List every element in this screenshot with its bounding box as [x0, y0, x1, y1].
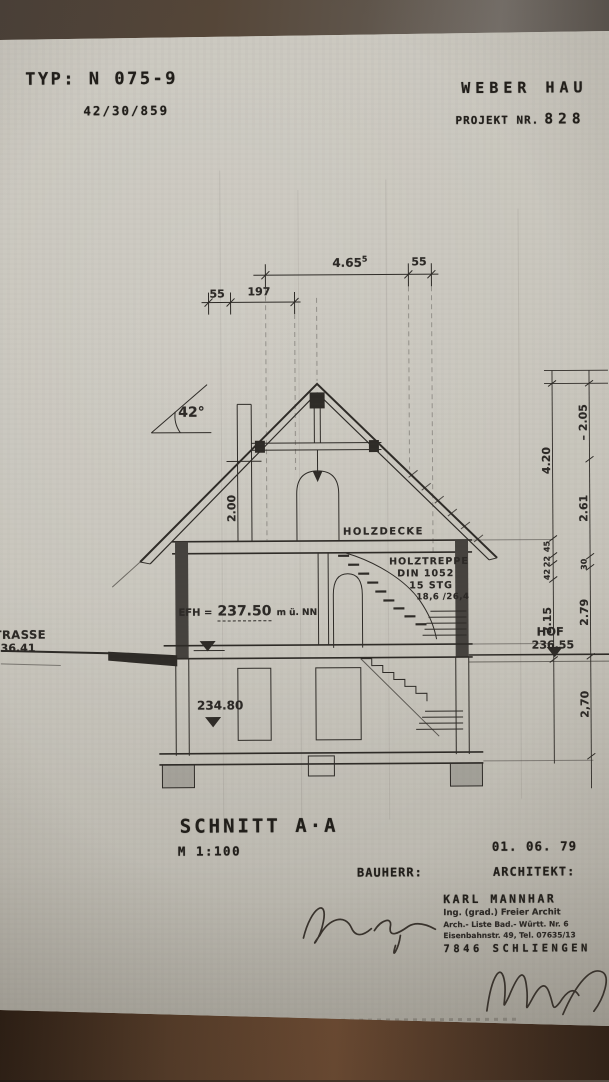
yard-level: 236.55	[532, 638, 575, 651]
dim-outer-30: 30	[580, 559, 589, 570]
street-label: TRASSE	[0, 628, 46, 642]
drawing-scale: M 1:100	[178, 843, 241, 858]
efh-label: EFH =	[178, 608, 212, 619]
dim-top-width-sup: 5	[362, 255, 368, 264]
sheet-content: TYP: N 075-9 42/30/859 WEBER HAU PROJEKT…	[0, 0, 609, 1082]
architect-line4: Eisenbahnstr. 49, Tel. 07635/13	[443, 930, 575, 940]
dim-top-197: 197	[247, 285, 270, 298]
basement-level: 234.80	[197, 698, 243, 712]
architect-name: KARL MANNHAR	[443, 891, 556, 906]
architect-signature	[487, 972, 579, 1011]
dim-outer-270: 2,70	[578, 691, 591, 718]
dim-outer-205: – 2.05	[577, 404, 590, 441]
blueprint-sheet: TYP: N 075-9 42/30/859 WEBER HAU PROJEKT…	[0, 0, 609, 1080]
dim-inner-420: 4.20	[540, 447, 553, 474]
dim-inner-22: 22	[543, 556, 552, 567]
drawing-date: 01. 06. 79	[492, 838, 577, 854]
client-signature	[303, 908, 371, 943]
photographed-blueprint-page: { "header": { "typ": "TYP: N 075-9", "co…	[0, 0, 609, 1080]
stair-note-3: 15 STG	[409, 580, 453, 591]
dim-top-width: 4.655	[332, 255, 367, 270]
efh-unit: m ü. NN	[277, 608, 318, 618]
efh-level: EFH = 237.50 m ü. NN	[178, 600, 317, 620]
efh-value: 237.50	[217, 603, 271, 621]
street-level: 36.41	[1, 642, 36, 655]
dim-inner-45: 45	[543, 541, 552, 552]
stair-note-2: DIN 1052	[397, 568, 454, 579]
drawing-title: SCHNITT A·A	[180, 815, 339, 838]
dim-top-width-value: 4.65	[332, 256, 362, 270]
attic-height-label: 2.00	[225, 495, 238, 522]
architect-label: ARCHITEKT:	[493, 864, 575, 879]
architect-line2: Ing. (grad.) Freier Archit	[443, 907, 560, 918]
dim-top-55r: 55	[411, 255, 426, 268]
client-label: BAUHERR:	[357, 865, 423, 879]
architect-city: 7846 SCHLIENGEN	[443, 942, 590, 955]
dim-inner-42: 42	[543, 569, 552, 580]
dim-outer-279: 2.79	[578, 599, 591, 626]
architect-line3: Arch.- Liste Bad.- Württ. Nr. 6	[443, 919, 568, 929]
roof-angle-label: 42°	[178, 405, 205, 421]
dim-inner-215: 2.15	[541, 607, 554, 634]
holzdecke-label: HOLZDECKE	[343, 526, 424, 537]
dim-top-55l: 55	[209, 287, 224, 300]
dim-outer-261: 2.61	[577, 495, 590, 522]
stair-note-4: 18,6 /26,4	[416, 592, 469, 602]
stair-note-1: HOLZTREPPE	[389, 556, 469, 567]
